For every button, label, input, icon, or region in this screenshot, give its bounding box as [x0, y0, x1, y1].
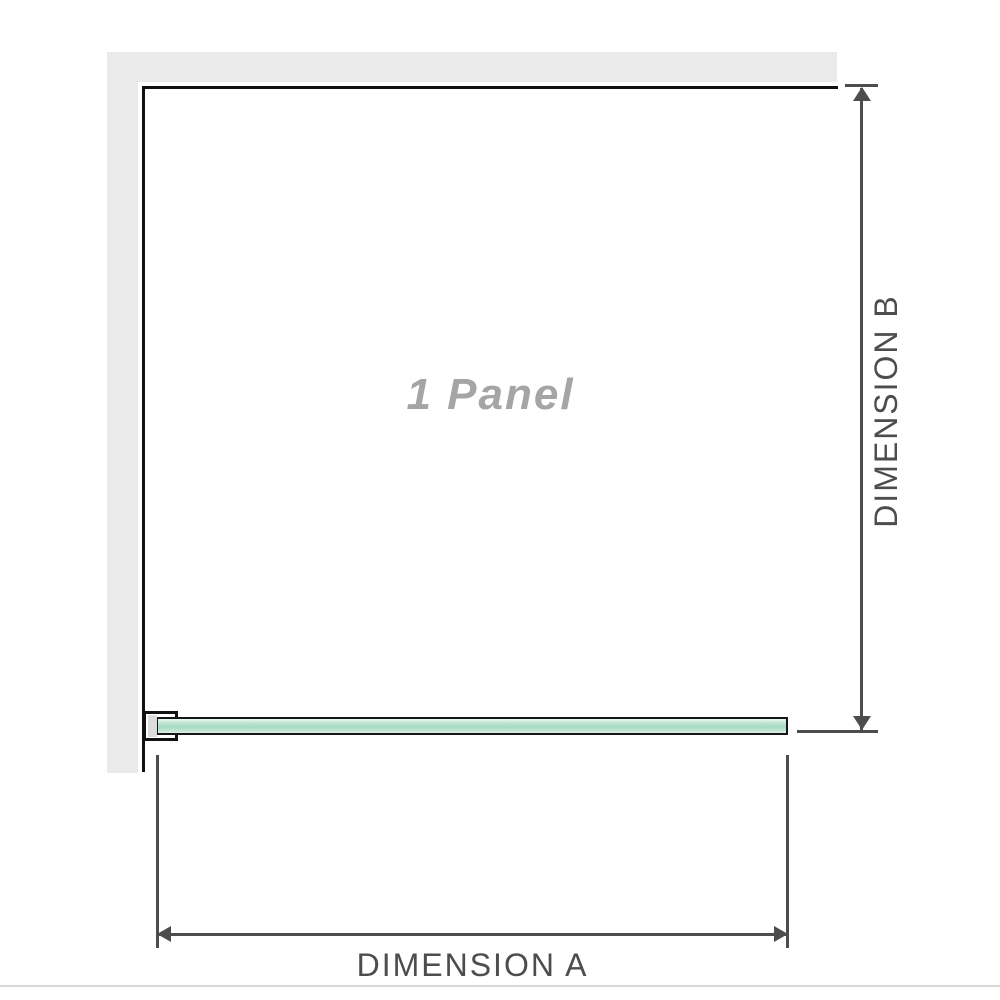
shower-panel-dimension-diagram: 1 Panel DIMENSION B DIMENSION A	[0, 0, 1000, 1000]
wall-left	[107, 52, 138, 773]
dimension-a-left-extension	[156, 755, 159, 948]
dimension-a-line	[157, 933, 788, 936]
dimension-a-right-extension	[786, 755, 789, 948]
dimension-b-label: DIMENSION B	[869, 245, 903, 577]
panel-outline-top	[142, 86, 838, 89]
arrow-up-icon	[853, 87, 871, 101]
dimension-a-label: DIMENSION A	[157, 948, 788, 982]
panel-outline-left	[142, 86, 145, 772]
dimension-b-bottom-tick	[797, 730, 878, 733]
panel-label: 1 Panel	[143, 368, 838, 422]
arrow-down-icon	[853, 716, 871, 730]
glass-panel	[156, 717, 788, 735]
arrow-right-icon	[774, 926, 788, 942]
dimension-b-line	[860, 88, 863, 730]
bottom-divider	[0, 985, 1000, 987]
wall-top	[107, 52, 837, 82]
wall-bracket-insert	[148, 715, 157, 737]
arrow-left-icon	[157, 926, 171, 942]
